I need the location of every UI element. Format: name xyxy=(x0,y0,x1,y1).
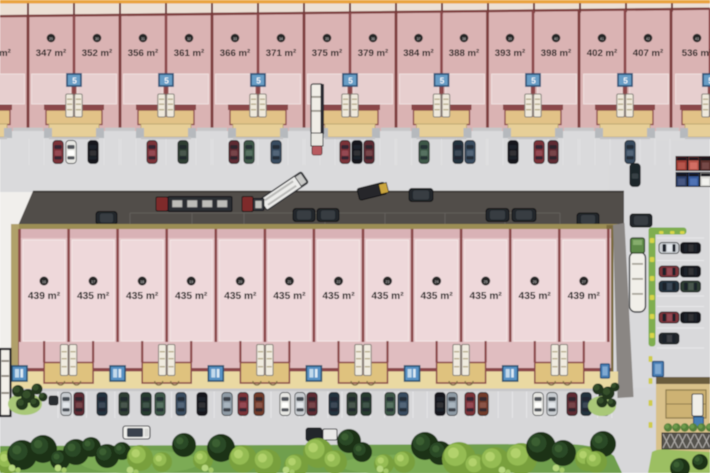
svg-text:5: 5 xyxy=(531,77,536,86)
svg-text:30: 30 xyxy=(95,37,99,41)
svg-text:356 m²: 356 m² xyxy=(128,48,158,59)
svg-text:435 m²: 435 m² xyxy=(371,291,404,302)
svg-text:25: 25 xyxy=(484,280,488,284)
svg-text:366 m²: 366 m² xyxy=(220,48,250,59)
svg-text:536 m²: 536 m² xyxy=(682,48,710,59)
svg-text:352 m²: 352 m² xyxy=(82,48,112,59)
svg-text:20: 20 xyxy=(238,280,242,284)
svg-text:361 m²: 361 m² xyxy=(174,48,204,59)
svg-text:435 m²: 435 m² xyxy=(126,291,159,302)
svg-text:435 m²: 435 m² xyxy=(273,291,306,302)
svg-text:5: 5 xyxy=(256,77,261,86)
svg-text:435 m²: 435 m² xyxy=(470,291,503,302)
svg-text:31: 31 xyxy=(141,37,145,41)
svg-text:21: 21 xyxy=(287,280,291,284)
svg-text:42: 42 xyxy=(646,37,650,41)
svg-text:26: 26 xyxy=(533,280,537,284)
svg-text:34: 34 xyxy=(279,37,283,41)
svg-text:35: 35 xyxy=(325,37,329,41)
svg-text:29: 29 xyxy=(49,37,53,41)
svg-text:347 m²: 347 m² xyxy=(36,48,66,59)
svg-text:5: 5 xyxy=(72,77,77,86)
svg-text:5: 5 xyxy=(440,77,445,86)
svg-text:37: 37 xyxy=(417,37,421,41)
svg-text:40: 40 xyxy=(554,37,558,41)
svg-text:23: 23 xyxy=(386,280,390,284)
svg-text:435 m²: 435 m² xyxy=(322,291,355,302)
svg-text:19: 19 xyxy=(189,280,193,284)
svg-text:m²: m² xyxy=(0,48,11,59)
svg-text:43: 43 xyxy=(695,37,699,41)
svg-text:22: 22 xyxy=(337,280,341,284)
svg-text:38: 38 xyxy=(462,37,466,41)
svg-text:371 m²: 371 m² xyxy=(266,48,296,59)
svg-text:5: 5 xyxy=(623,77,628,86)
svg-text:435 m²: 435 m² xyxy=(77,291,110,302)
svg-text:379 m²: 379 m² xyxy=(358,48,388,59)
svg-text:24: 24 xyxy=(435,280,439,284)
svg-text:384 m²: 384 m² xyxy=(403,48,433,59)
svg-text:5: 5 xyxy=(164,77,169,86)
svg-text:393 m²: 393 m² xyxy=(495,48,525,59)
svg-text:375 m²: 375 m² xyxy=(312,48,342,59)
svg-text:18: 18 xyxy=(140,280,144,284)
svg-text:33: 33 xyxy=(233,37,237,41)
svg-text:435 m²: 435 m² xyxy=(175,291,208,302)
svg-text:5: 5 xyxy=(348,77,353,86)
svg-text:36: 36 xyxy=(371,37,375,41)
svg-text:41: 41 xyxy=(600,37,604,41)
svg-text:39: 39 xyxy=(508,37,512,41)
svg-text:439 m²: 439 m² xyxy=(568,291,601,302)
svg-text:435 m²: 435 m² xyxy=(224,291,257,302)
svg-text:407 m²: 407 m² xyxy=(633,48,663,59)
svg-text:402 m²: 402 m² xyxy=(587,48,617,59)
svg-text:27: 27 xyxy=(582,280,586,284)
svg-text:435 m²: 435 m² xyxy=(420,291,453,302)
svg-text:398 m²: 398 m² xyxy=(541,48,571,59)
svg-text:17: 17 xyxy=(91,280,95,284)
svg-text:439 m²: 439 m² xyxy=(28,291,61,302)
svg-text:16: 16 xyxy=(42,280,46,284)
svg-text:435 m²: 435 m² xyxy=(519,291,552,302)
svg-text:388 m²: 388 m² xyxy=(449,48,479,59)
svg-text:32: 32 xyxy=(187,37,191,41)
